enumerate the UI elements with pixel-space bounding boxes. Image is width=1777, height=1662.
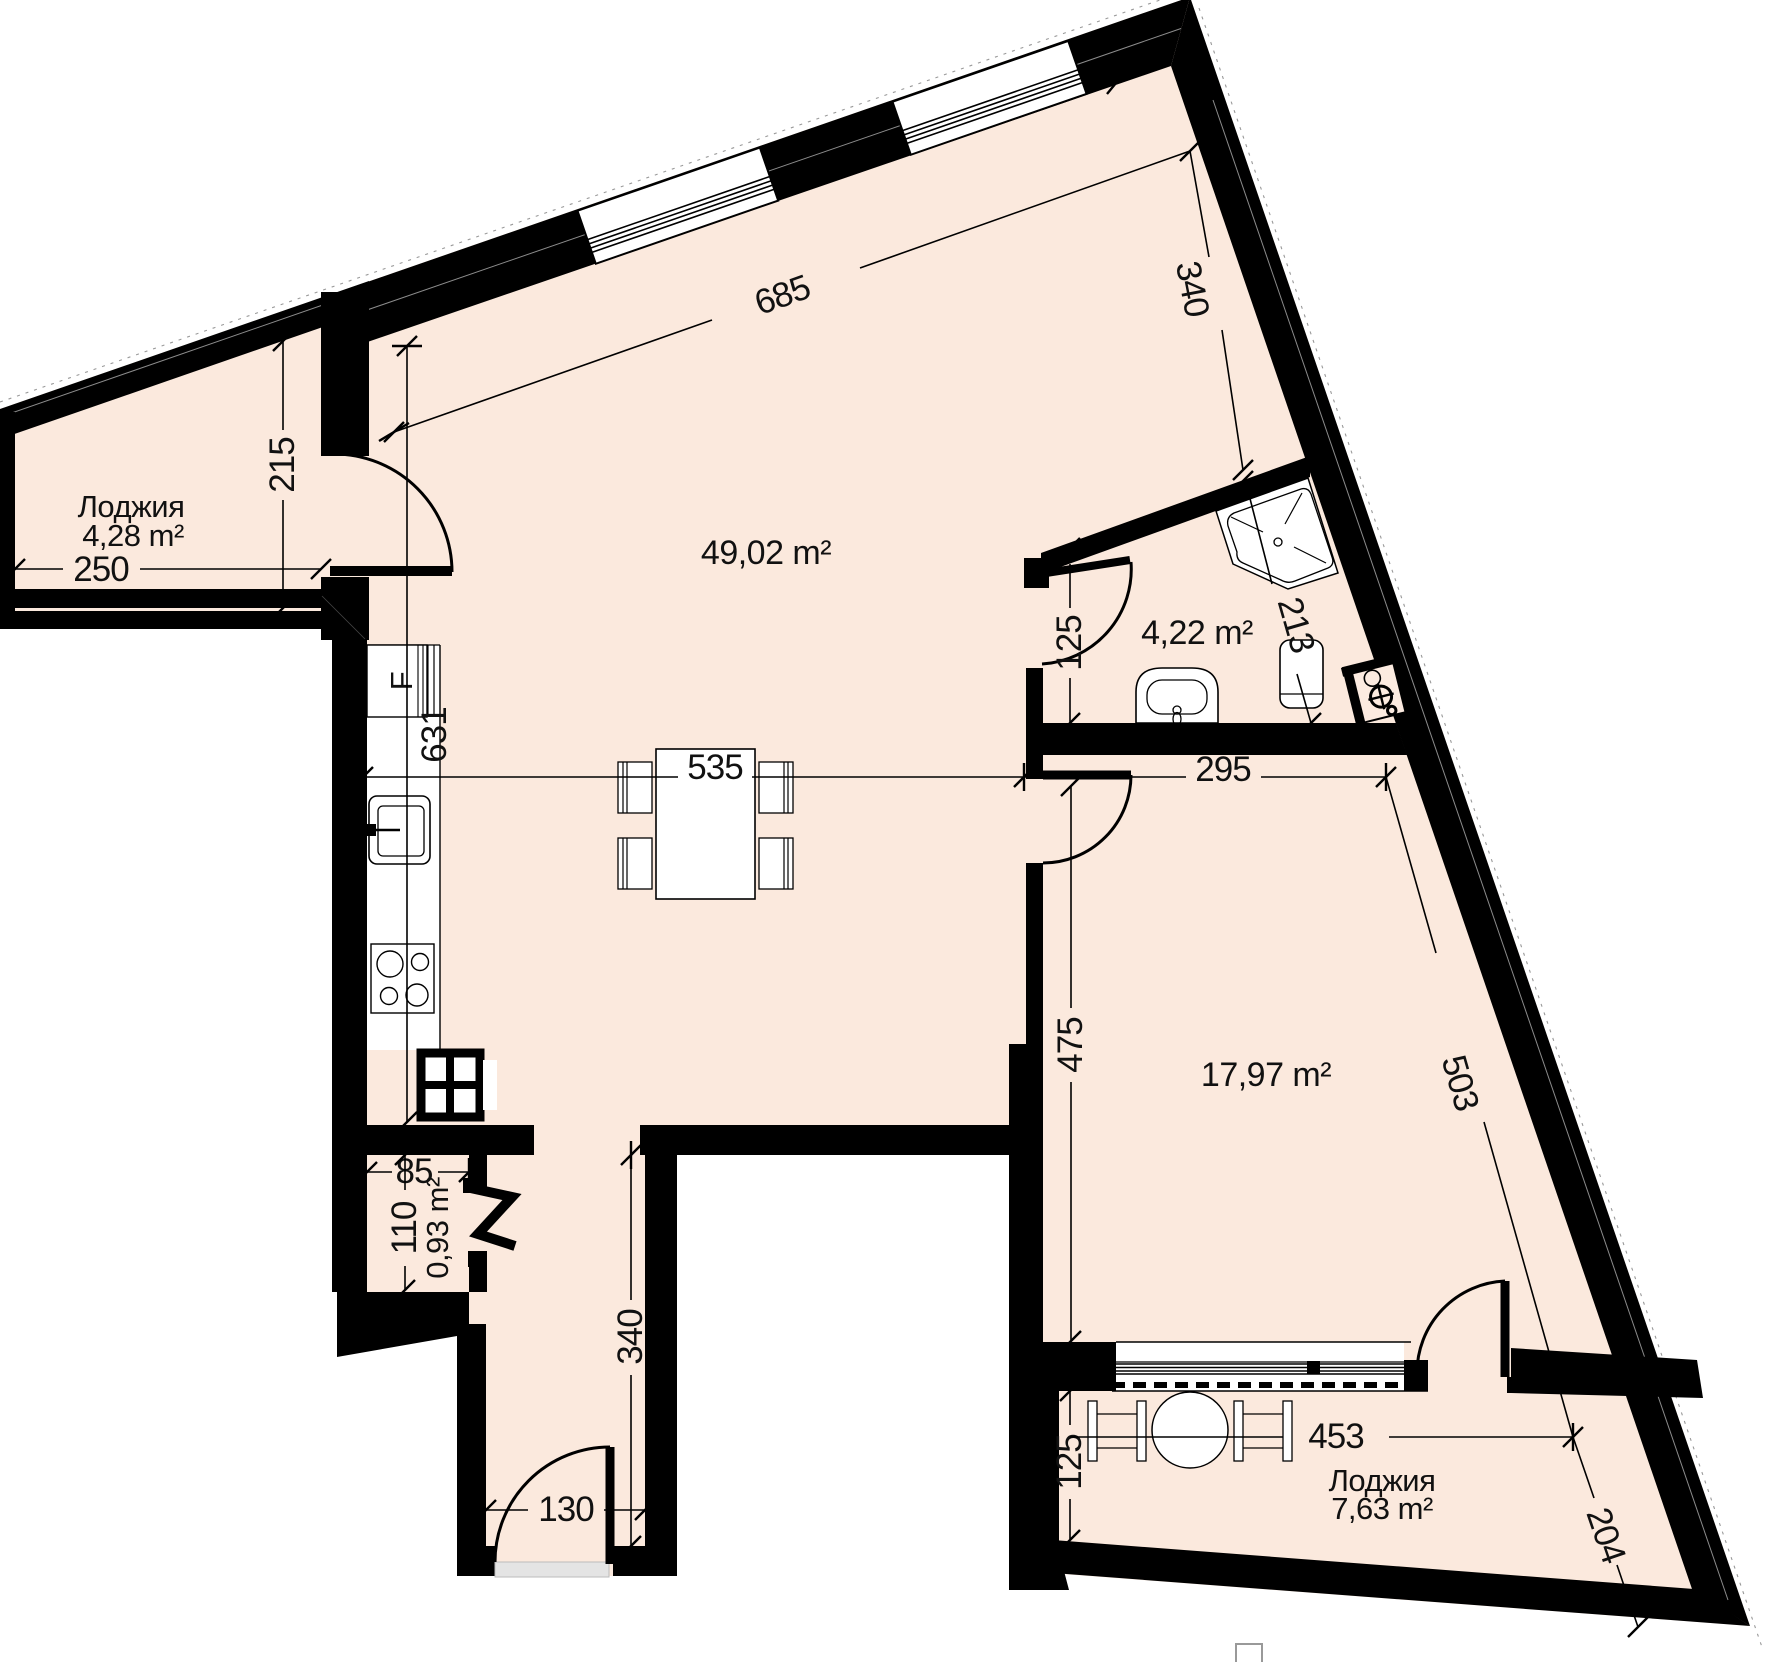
svg-text:631: 631 — [415, 707, 454, 762]
svg-text:475: 475 — [1051, 1017, 1090, 1072]
svg-text:295: 295 — [1195, 750, 1250, 789]
svg-text:4,28 m²: 4,28 m² — [82, 518, 184, 553]
svg-text:340: 340 — [611, 1309, 650, 1365]
svg-text:49,02 m²: 49,02 m² — [701, 534, 831, 572]
svg-text:7,63 m²: 7,63 m² — [1331, 1491, 1433, 1526]
svg-text:0,93 m²: 0,93 m² — [420, 1177, 455, 1279]
svg-text:4,22 m²: 4,22 m² — [1141, 614, 1253, 652]
svg-text:130: 130 — [538, 1490, 594, 1529]
svg-text:125: 125 — [1050, 1434, 1089, 1489]
svg-text:250: 250 — [73, 550, 129, 589]
svg-text:125: 125 — [1050, 615, 1089, 670]
svg-text:215: 215 — [263, 437, 302, 492]
svg-text:110: 110 — [385, 1201, 424, 1254]
svg-text:17,97 m²: 17,97 m² — [1201, 1056, 1331, 1094]
svg-text:453: 453 — [1308, 1417, 1363, 1456]
svg-text:F: F — [384, 672, 419, 690]
svg-text:535: 535 — [687, 748, 742, 787]
